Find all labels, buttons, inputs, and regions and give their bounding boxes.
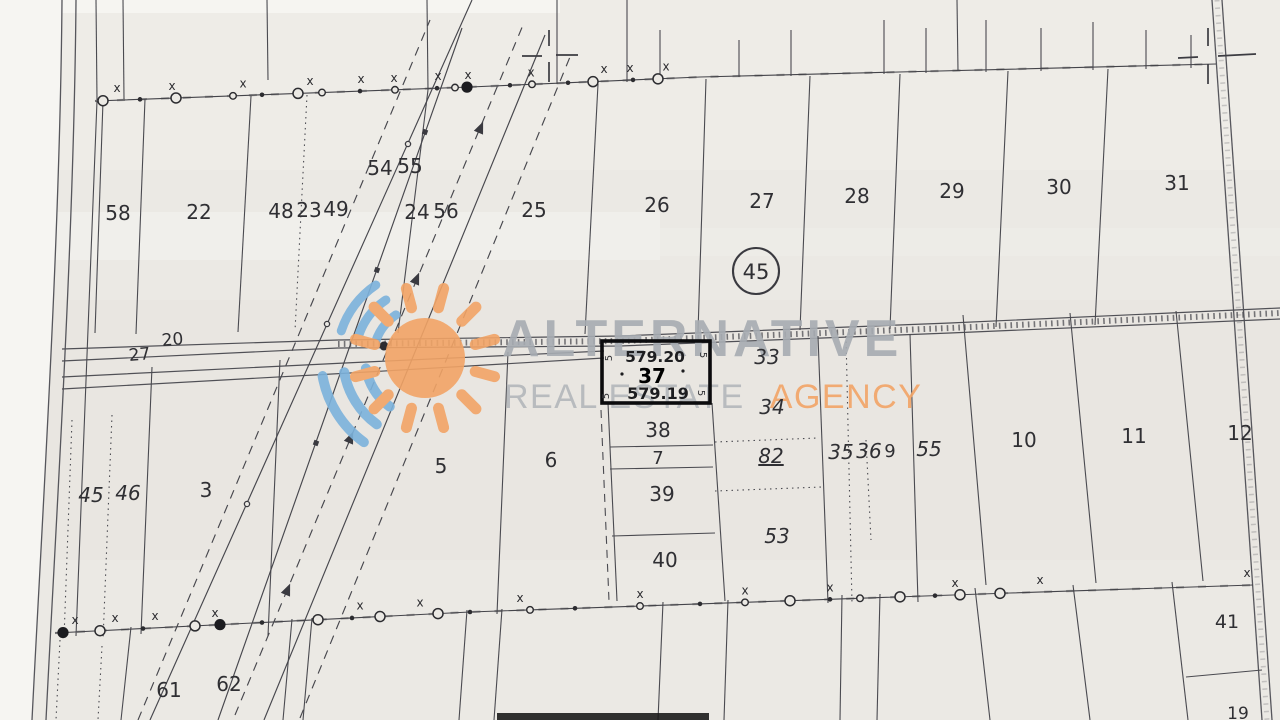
corridor-point: [244, 501, 249, 506]
parcel-label-10: 10: [1011, 428, 1036, 452]
survey-x-mark: x: [741, 583, 748, 597]
parcel-label-55: 55: [916, 437, 941, 461]
survey-point: [895, 592, 905, 602]
survey-point: [190, 621, 200, 631]
survey-point: [573, 606, 578, 611]
survey-point: [742, 599, 749, 606]
survey-x-mark: x: [151, 609, 158, 623]
corridor-point: [405, 141, 410, 146]
survey-x-mark: x: [600, 62, 607, 76]
parcel-label-55: 55: [397, 154, 422, 178]
parcel-label-5: 5: [697, 352, 708, 358]
survey-point-major: [214, 619, 225, 630]
survey-point: [508, 83, 513, 88]
survey-point: [529, 81, 536, 88]
survey-point: [260, 92, 265, 97]
survey-point: [588, 77, 598, 87]
survey-point-major: [57, 627, 68, 638]
survey-point: [698, 602, 703, 607]
plot37-elevation-bottom: 579.19: [627, 384, 689, 403]
watermark-line2-orange: AGENCY: [770, 378, 923, 416]
parcel-label-11: 11: [1121, 424, 1146, 448]
parcel-label-25: 25: [521, 198, 546, 222]
region-circle-number: 45: [743, 260, 770, 284]
survey-point: [293, 88, 303, 98]
parcel-label-5: 5: [601, 393, 612, 399]
survey-point: [375, 612, 385, 622]
parcel-label-24: 24: [404, 200, 429, 224]
survey-point: [138, 97, 143, 102]
survey-point: [171, 93, 181, 103]
corridor-point: [324, 321, 329, 326]
parcel-label-19: 19: [1227, 704, 1249, 720]
survey-point: [933, 593, 938, 598]
survey-point: [260, 620, 265, 625]
parcel-label-62: 62: [216, 672, 241, 696]
survey-point: [435, 86, 440, 91]
survey-point: [141, 626, 146, 631]
parcel-label-28: 28: [844, 184, 869, 208]
parcel-label-48: 48: [268, 199, 293, 223]
parcel-label-49: 49: [323, 197, 348, 221]
survey-point: [631, 78, 636, 83]
parcel-label-56: 56: [433, 199, 458, 223]
survey-x-mark: x: [390, 71, 397, 85]
survey-point: [527, 607, 534, 614]
survey-point: [857, 595, 864, 602]
survey-x-mark: x: [239, 76, 246, 90]
survey-point: [828, 597, 833, 602]
parcel-label-27: 27: [128, 344, 151, 366]
parcel-label-58: 58: [105, 201, 130, 225]
survey-x-mark: x: [71, 613, 78, 627]
parcel-label-23: 23: [296, 198, 321, 222]
survey-x-mark: x: [416, 596, 423, 610]
survey-point: [653, 74, 663, 84]
parcel-label-45: 45: [78, 483, 103, 507]
survey-x-mark: x: [951, 576, 958, 590]
survey-x-mark: x: [434, 69, 441, 83]
parcel-label-12: 12: [1227, 421, 1252, 445]
parcel-label-22: 22: [186, 200, 211, 224]
parcel-label-35: 35: [828, 440, 853, 464]
survey-point: [98, 96, 108, 106]
survey-point: [319, 89, 326, 96]
cadastral-map: xxxxxxxxxxxx xxxxxxxxxxxxx ALTERNATIVE R…: [0, 0, 1280, 720]
survey-x-mark: x: [516, 591, 523, 605]
parcel-label-54: 54: [367, 156, 392, 180]
parcel-label-36: 36: [856, 439, 881, 463]
survey-x-mark: x: [1036, 573, 1043, 587]
survey-point: [392, 87, 399, 94]
parcel-label-38: 38: [645, 418, 670, 442]
survey-x-mark: x: [464, 68, 471, 82]
survey-point: [995, 588, 1005, 598]
parcel-label-30: 30: [1046, 175, 1071, 199]
parcel-label-27: 27: [749, 189, 774, 213]
survey-x-mark: x: [626, 61, 633, 75]
parcel-label-9: 9: [884, 441, 895, 462]
parcel-label-41: 41: [1215, 611, 1239, 633]
parcel-label-5: 5: [695, 390, 706, 396]
parcel-label-31: 31: [1164, 171, 1189, 195]
survey-point: [433, 609, 443, 619]
survey-point: [955, 590, 965, 600]
svg-text:REAL ESTATE AGENCY: REAL ESTATE AGENCY: [504, 378, 922, 416]
survey-point: [313, 615, 323, 625]
parcel-label-61: 61: [156, 678, 181, 702]
parcel-label-6: 6: [545, 448, 558, 472]
survey-point-major: [461, 82, 472, 93]
survey-x-mark: x: [211, 606, 218, 620]
parcel-label-29: 29: [939, 179, 964, 203]
scanned-cadastral-map: xxxxxxxxxxxx xxxxxxxxxxxxx ALTERNATIVE R…: [0, 0, 1280, 720]
survey-x-mark: x: [826, 580, 833, 594]
parcel-label-53: 53: [764, 524, 789, 548]
parcel-label-5: 5: [435, 454, 448, 478]
survey-point: [566, 80, 571, 85]
survey-point: [785, 596, 795, 606]
survey-x-mark: x: [113, 81, 120, 95]
watermark-line1: ALTERNATIVE: [502, 310, 902, 368]
parcel-label-5: 5: [604, 355, 615, 361]
survey-point: [95, 626, 105, 636]
survey-x-mark: x: [1243, 566, 1250, 580]
survey-x-mark: x: [357, 72, 364, 86]
parcel-label-20: 20: [161, 329, 184, 351]
parcel-label-26: 26: [644, 193, 669, 217]
survey-x-mark: x: [662, 59, 669, 73]
survey-point: [637, 603, 644, 610]
parcel-label-34: 34: [759, 395, 784, 419]
survey-point: [358, 89, 363, 94]
survey-x-mark: x: [111, 611, 118, 625]
survey-x-mark: x: [356, 599, 363, 613]
parcel-label-7: 7: [652, 448, 663, 469]
parcel-label-82: 82: [758, 444, 783, 468]
parcel-label-46: 46: [115, 481, 140, 505]
survey-x-mark: x: [636, 587, 643, 601]
survey-point: [452, 84, 459, 91]
parcel-label-33: 33: [754, 345, 779, 369]
survey-x-mark: x: [306, 74, 313, 88]
parcel-label-3: 3: [200, 478, 213, 502]
parcel-label-40: 40: [652, 548, 677, 572]
survey-point: [468, 610, 473, 615]
parcel-label-39: 39: [649, 482, 674, 506]
survey-x-mark: x: [168, 79, 175, 93]
survey-point: [230, 93, 237, 100]
scan-artifact: [497, 713, 709, 720]
survey-point: [350, 616, 355, 621]
survey-x-mark: x: [527, 65, 534, 79]
